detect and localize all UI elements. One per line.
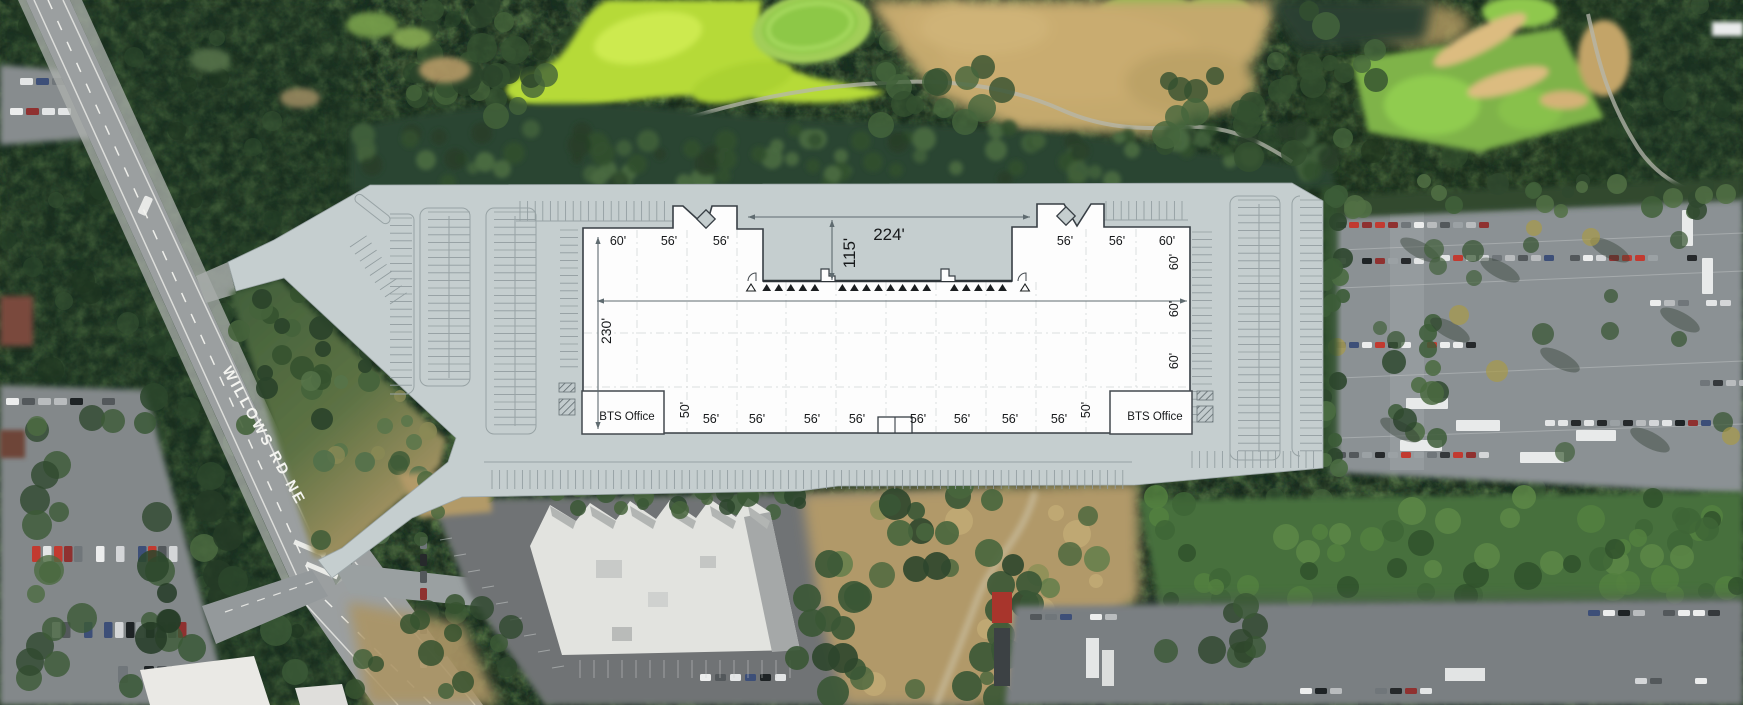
svg-text:115': 115' — [840, 238, 859, 268]
svg-text:50': 50' — [1079, 402, 1093, 418]
svg-text:224': 224' — [873, 225, 905, 244]
svg-text:56': 56' — [1002, 412, 1018, 426]
svg-text:56': 56' — [703, 412, 719, 426]
svg-text:56': 56' — [954, 412, 970, 426]
svg-text:60': 60' — [1159, 234, 1175, 248]
svg-text:50': 50' — [678, 402, 692, 418]
svg-text:56': 56' — [661, 234, 677, 248]
svg-text:60': 60' — [1167, 353, 1181, 369]
svg-text:60': 60' — [610, 234, 626, 248]
svg-text:56': 56' — [749, 412, 765, 426]
svg-text:230': 230' — [598, 318, 614, 344]
svg-text:56': 56' — [910, 412, 926, 426]
svg-text:BTS Office: BTS Office — [599, 411, 654, 423]
svg-text:BTS Office: BTS Office — [1127, 411, 1182, 423]
svg-text:60': 60' — [1167, 301, 1181, 317]
svg-text:56': 56' — [1057, 234, 1073, 248]
svg-text:56': 56' — [713, 234, 729, 248]
svg-text:56': 56' — [1051, 412, 1067, 426]
svg-text:60': 60' — [1167, 254, 1181, 270]
svg-text:56': 56' — [804, 412, 820, 426]
svg-text:56': 56' — [1109, 234, 1125, 248]
svg-text:56': 56' — [849, 412, 865, 426]
